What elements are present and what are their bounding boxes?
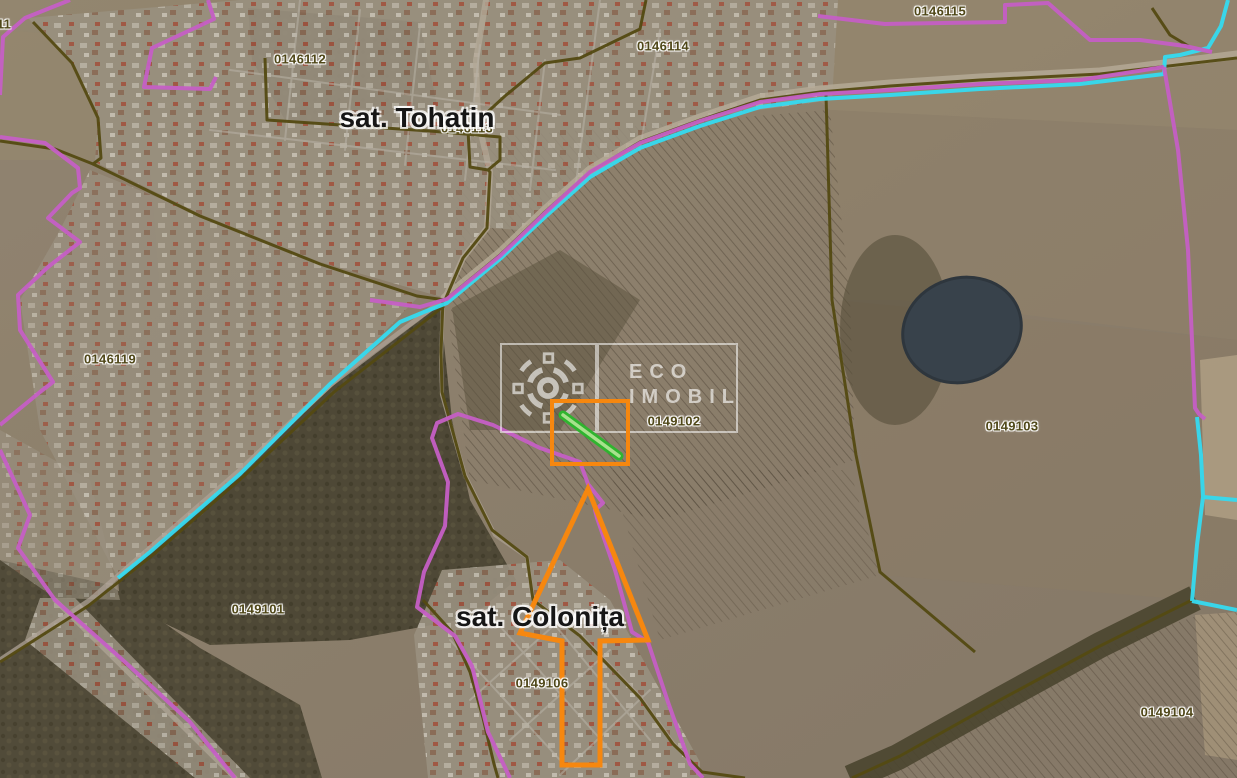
parcel-label-0149102: 0149102 [648,414,701,429]
parcel-label-0149104: 0149104 [1141,705,1194,720]
parcel-label-0149101: 0149101 [232,602,285,617]
highlight-annotations [0,0,1237,778]
parcel-label-0149106: 0149106 [516,676,569,691]
parcel-label-0146119: 0146119 [84,352,136,367]
parcel-label-0149103: 0149103 [986,419,1039,434]
village-label-tohatin: sat. Tohatin [339,102,494,134]
parcel-label-0146115: 0146115 [914,4,966,19]
selected-parcel-strip-core [563,415,619,456]
parcel-label-0146111-partial: 11 [0,17,11,32]
parcel-label-0146114: 0146114 [637,39,689,54]
map-viewport[interactable]: ECO IMOBIL 11 0146112 0146113 0146114 01… [0,0,1237,778]
village-label-colonita: sat. Colonița [456,601,624,633]
parcel-label-0146112: 0146112 [274,52,326,67]
